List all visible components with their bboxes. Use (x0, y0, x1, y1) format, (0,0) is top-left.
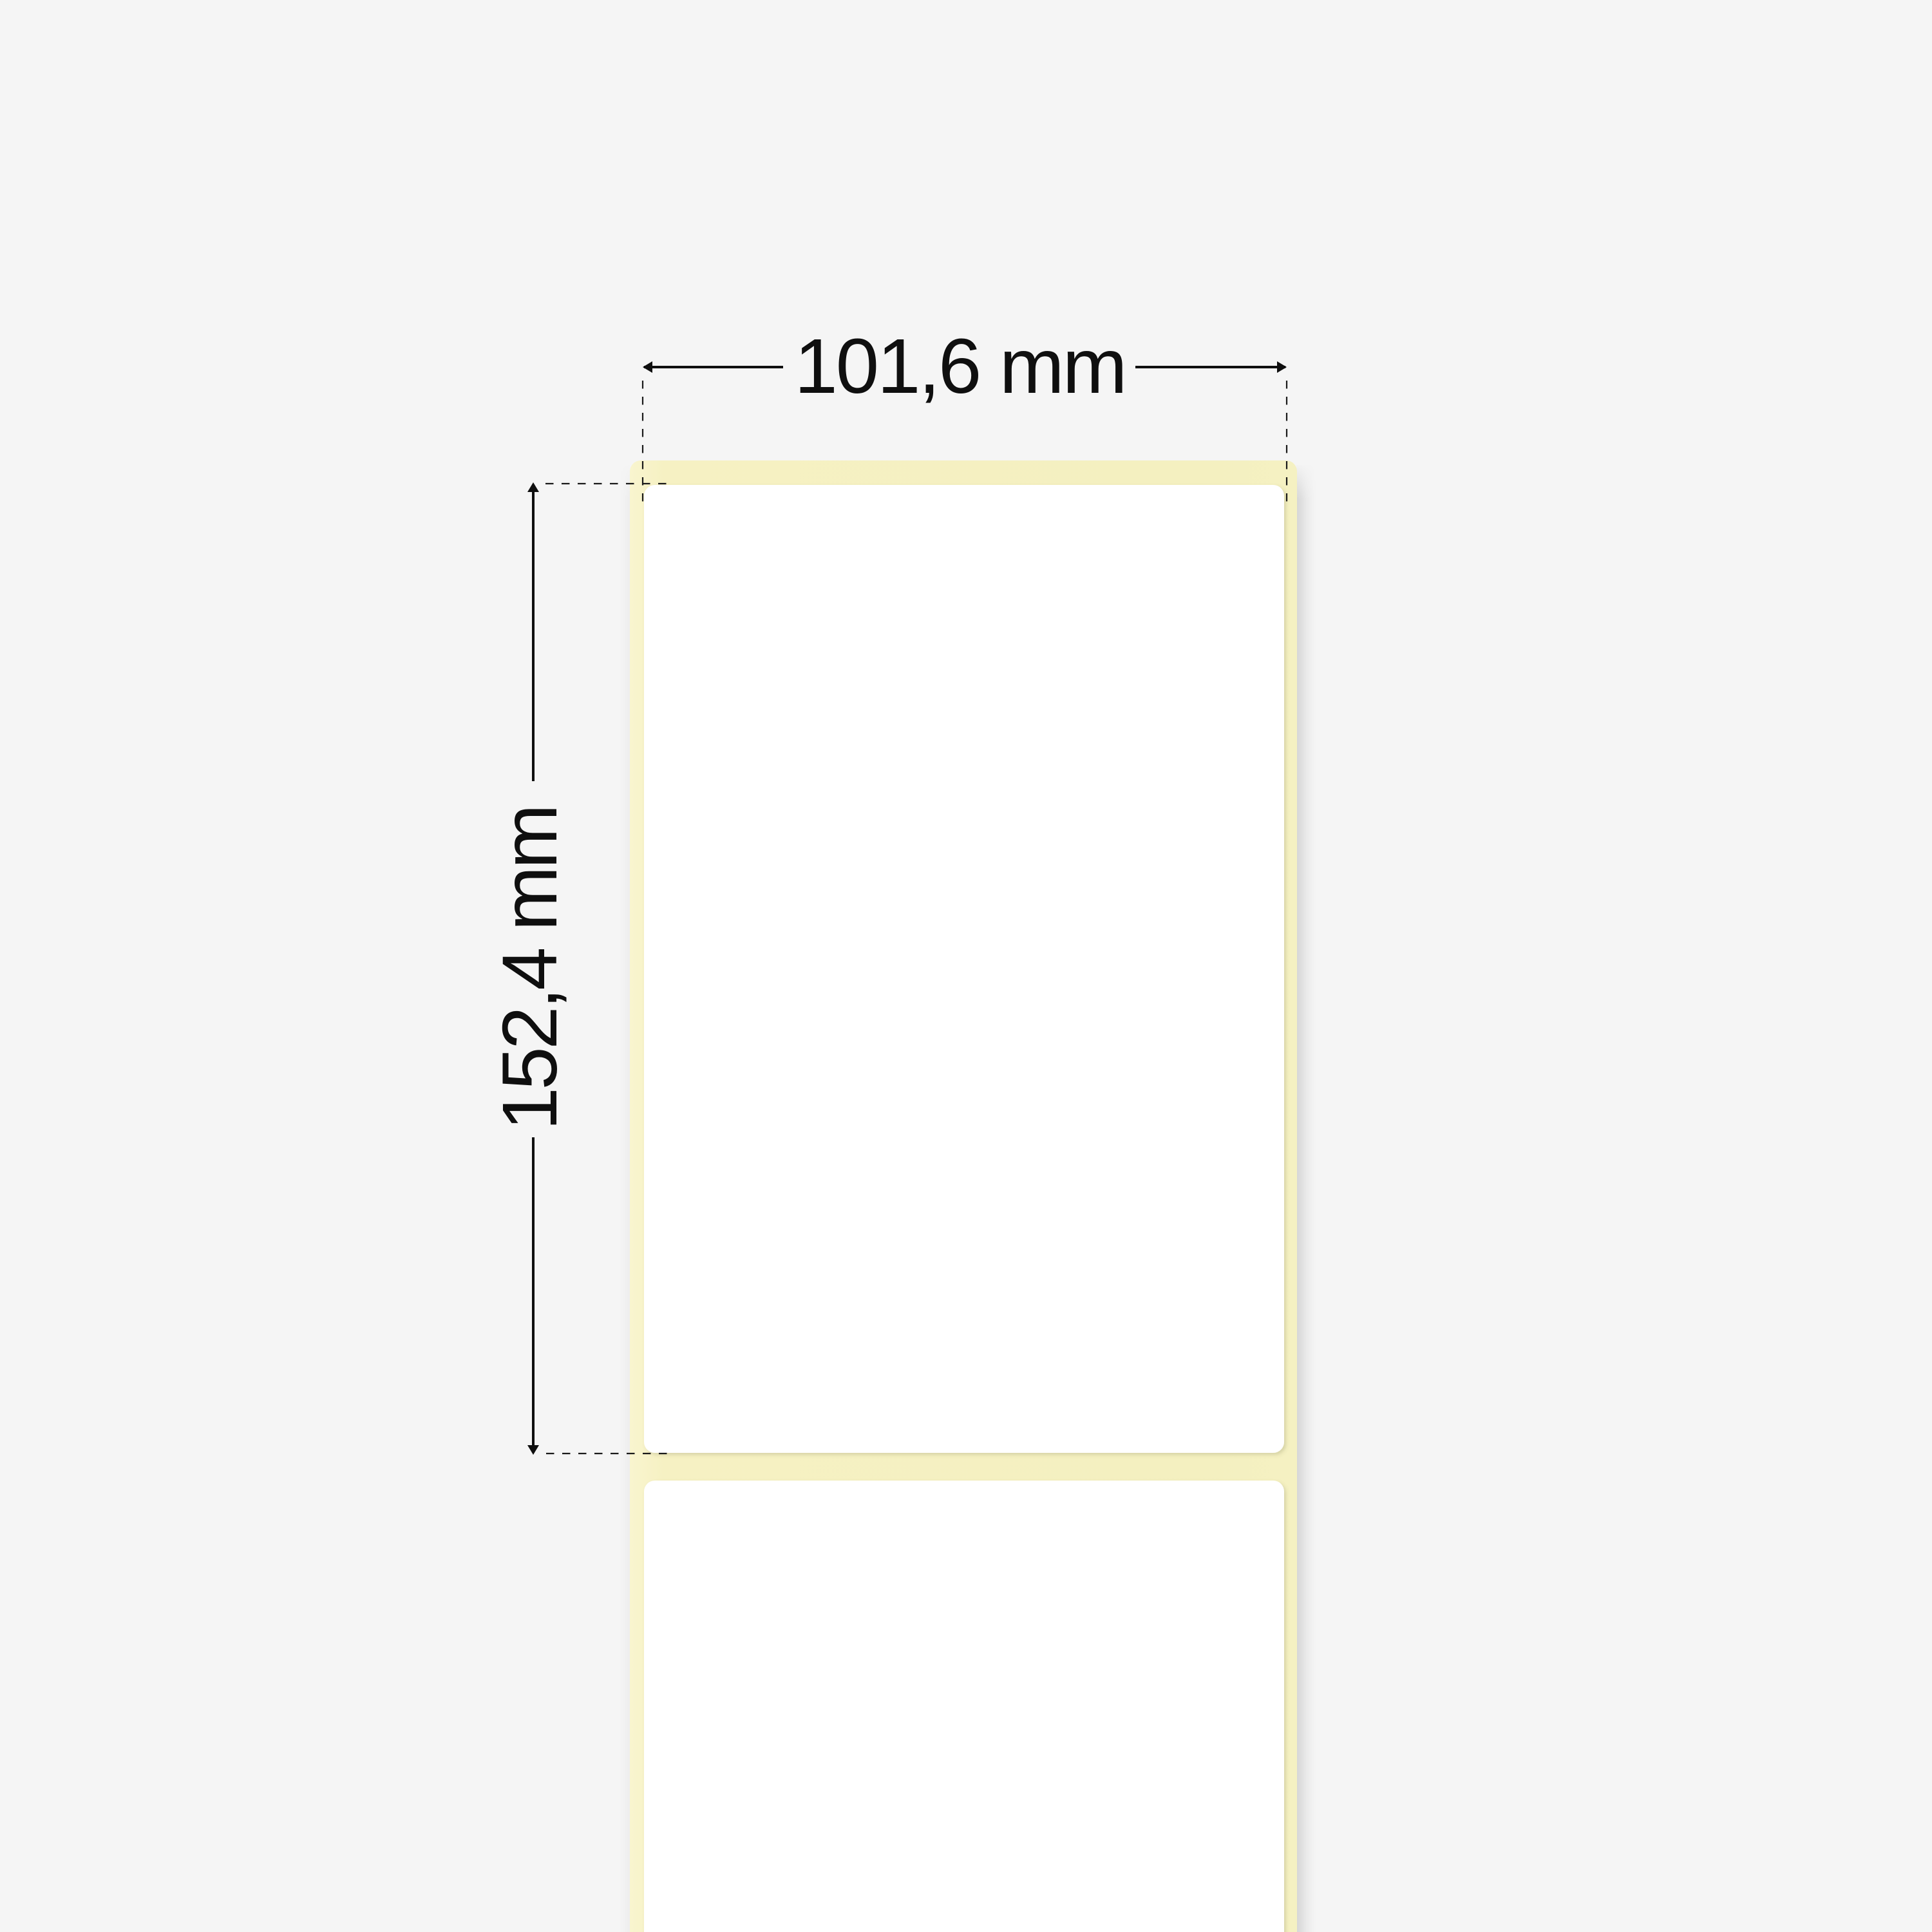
svg-text:101,6 mm: 101,6 mm (795, 322, 1128, 410)
svg-text:152,4 mm: 152,4 mm (486, 804, 573, 1131)
